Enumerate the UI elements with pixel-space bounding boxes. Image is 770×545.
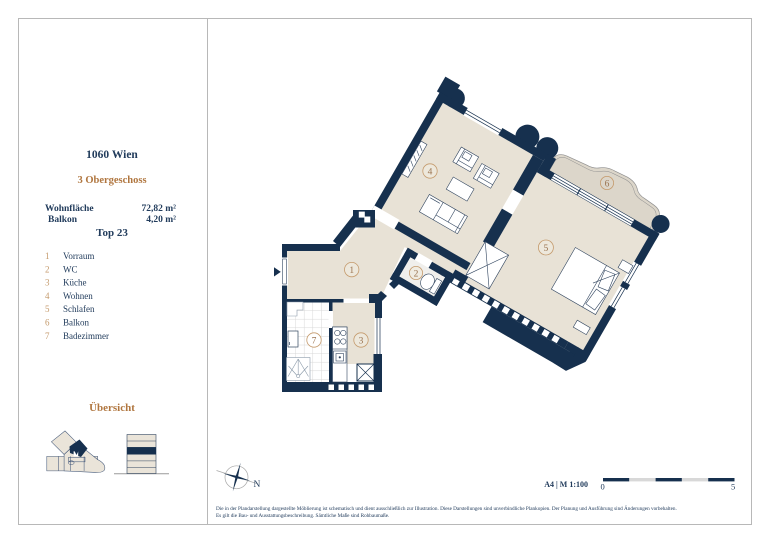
svg-text:2: 2 [414, 269, 419, 279]
svg-text:Balkon: Balkon [63, 318, 89, 328]
svg-text:Es gilt die Bau- und Ausstattu: Es gilt die Bau- und Ausstattungsbeschre… [216, 512, 389, 519]
svg-text:7: 7 [312, 336, 317, 346]
svg-text:Vorraum: Vorraum [63, 251, 94, 261]
svg-text:Küche: Küche [63, 278, 87, 288]
svg-text:4: 4 [45, 291, 50, 301]
svg-text:6: 6 [45, 318, 50, 328]
svg-text:7: 7 [45, 331, 50, 341]
svg-text:5: 5 [544, 244, 549, 254]
svg-text:4: 4 [428, 167, 433, 177]
svg-text:1060 Wien: 1060 Wien [86, 149, 138, 161]
svg-text:72,82 m²: 72,82 m² [141, 204, 176, 214]
svg-text:WC: WC [63, 264, 78, 274]
svg-text:Balkon: Balkon [48, 215, 78, 225]
svg-text:Schlafen: Schlafen [63, 304, 95, 314]
svg-text:A4 | M 1:100: A4 | M 1:100 [544, 480, 588, 489]
svg-text:0: 0 [601, 482, 605, 492]
svg-text:6: 6 [605, 179, 610, 189]
svg-text:Wohnfläche: Wohnfläche [45, 204, 94, 214]
svg-text:1: 1 [349, 266, 354, 276]
svg-text:Top 23: Top 23 [96, 227, 128, 239]
svg-text:Die in der Plandarstellung dar: Die in der Plandarstellung dargestellte … [216, 505, 677, 512]
svg-text:Wohnen: Wohnen [63, 291, 93, 301]
svg-text:Badezimmer: Badezimmer [63, 331, 109, 341]
svg-text:Übersicht: Übersicht [89, 401, 135, 414]
svg-text:N: N [254, 480, 261, 490]
svg-text:3: 3 [359, 336, 364, 346]
svg-text:3: 3 [45, 278, 50, 288]
svg-text:5: 5 [731, 482, 735, 492]
svg-text:5: 5 [45, 304, 50, 314]
svg-text:3 Obergeschoss: 3 Obergeschoss [77, 175, 146, 186]
svg-text:4,20 m²: 4,20 m² [146, 215, 176, 225]
svg-text:2: 2 [45, 264, 50, 274]
svg-text:1: 1 [45, 251, 50, 261]
